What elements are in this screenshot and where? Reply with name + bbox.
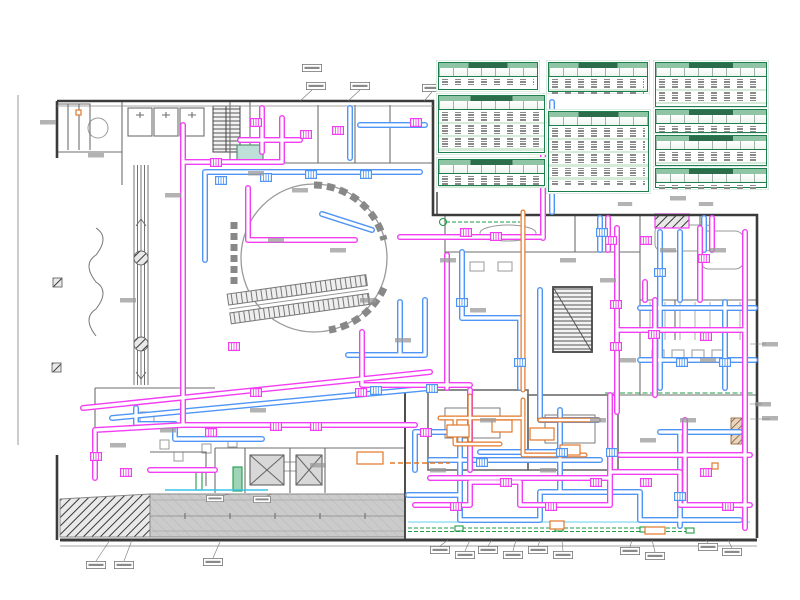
schedule-5 [548,111,649,192]
schedule-row [552,157,645,158]
schedule-header [439,101,544,110]
schedule-header [656,68,766,77]
schedule-row [552,135,645,136]
schedule-header [439,165,544,174]
schedule-row [442,181,541,182]
schedule-row [552,154,645,155]
schedule-9 [655,168,767,188]
schedule-body [656,124,766,132]
schedule-row [552,86,644,87]
escalators [227,275,370,324]
schedule-row [659,154,763,155]
schedule-row [442,84,534,85]
schedule-row [442,141,541,142]
schedule-row [442,146,541,147]
parking-ramp [60,494,405,537]
schedule-row [659,100,763,101]
schedule-1 [438,62,538,90]
schedule-row [659,157,763,158]
schedule-row [442,143,541,144]
schedule-row [659,126,763,127]
schedule-4 [548,62,648,92]
schedule-body [549,126,648,185]
schedule-row [442,119,541,120]
schedule-row [552,181,645,182]
schedule-row [552,159,645,160]
schedule-row [552,79,644,80]
schedule-row [442,79,534,80]
schedule-row [552,162,645,163]
schedule-row [552,144,645,145]
schedule-6 [655,62,767,107]
schedule-body [656,77,766,104]
schedule-row [552,149,645,150]
drawing-sheet [0,0,800,600]
schedule-body [549,77,647,94]
schedule-body [656,183,766,189]
schedule-row [552,128,645,129]
schedule-row [552,183,645,184]
schedule-row [659,185,763,186]
schedule-body [439,174,544,188]
schedule-row [552,141,645,142]
schedule-row [552,168,645,169]
schedule-row [442,114,541,115]
schedule-row [552,84,644,85]
schedule-row [552,172,645,173]
schedule-row [552,170,645,171]
schedule-row [442,125,541,126]
schedule-row [659,81,763,82]
schedule-row [552,175,645,176]
schedule-header [549,68,647,77]
schedule-body [439,110,544,151]
schedule-7 [655,109,767,133]
schedule-header [656,141,766,150]
schedule-row [442,128,541,129]
schedule-row [659,97,763,98]
schedule-header [656,115,766,124]
schedule-row [442,178,541,179]
schedule-header [656,174,766,183]
schedule-row [659,159,763,160]
schedule-row [659,131,763,132]
schedule-row [442,81,534,82]
schedule-row [659,95,763,96]
schedule-row [552,133,645,134]
schedule-row [442,117,541,118]
schedule-row [552,81,644,82]
schedule-row [659,86,763,87]
schedule-2 [438,95,545,153]
schedule-row [442,130,541,131]
schedule-row [442,112,541,113]
schedule-header [439,68,537,77]
schedule-row [659,84,763,85]
schedule-row [442,176,541,177]
schedule-row [659,79,763,80]
schedule-3 [438,159,545,186]
schedule-row [442,138,541,139]
schedule-row [442,133,541,134]
schedule-row [659,187,763,188]
corridor-bridge [52,165,148,385]
schedule-body [439,77,537,85]
schedule-header [549,117,648,126]
schedule-row [552,130,645,131]
partitions [57,101,757,493]
schedule-8 [655,135,767,166]
schedule-row [552,92,644,93]
schedule-row [442,183,541,184]
schedule-row [659,152,763,153]
schedule-row [552,146,645,147]
schedule-row [659,92,763,93]
schedule-row [659,128,763,129]
schedule-body [656,150,766,164]
